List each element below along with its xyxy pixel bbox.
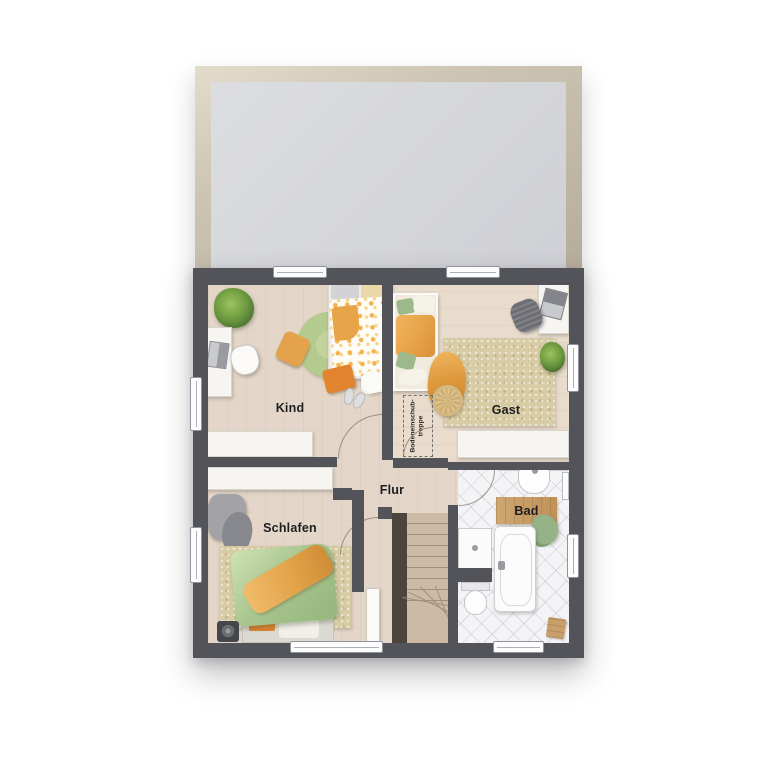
window-gast-north xyxy=(446,266,500,278)
wall-schlafen-stub xyxy=(333,488,352,500)
schlafen-speaker xyxy=(217,621,239,642)
gast-bed-pillow-white2 xyxy=(398,367,428,387)
window-schlafen-south xyxy=(290,641,383,653)
kind-laptop xyxy=(206,341,229,370)
speaker-cone xyxy=(222,625,234,637)
staircase xyxy=(392,513,448,643)
wall-gast-south xyxy=(393,458,448,468)
kind-plant xyxy=(214,288,254,328)
window-bad-south xyxy=(493,641,544,653)
gast-bed-pillow-green xyxy=(396,298,415,316)
room-label-bad: Bad xyxy=(514,504,538,518)
bad-towel-rail xyxy=(562,472,569,500)
bad-counter-dark xyxy=(455,568,492,582)
vanity-faucet-icon xyxy=(472,545,478,551)
flur-door-leaf xyxy=(366,588,380,642)
bad-toilet-bowl xyxy=(464,590,487,615)
bathtub-basin xyxy=(500,534,532,606)
floor-plan-scene: Bodeneinschub- treppe Bad xyxy=(0,0,775,775)
window-gast-east xyxy=(567,344,579,392)
window-schlafen-west xyxy=(190,527,202,583)
room-label-schlafen: Schlafen xyxy=(240,521,340,535)
gast-plant xyxy=(540,342,565,372)
bad-vanity xyxy=(458,528,492,569)
wall-top xyxy=(193,268,584,285)
bad-stool xyxy=(546,617,567,639)
stair-treads xyxy=(407,513,448,601)
stair-stringer xyxy=(392,513,407,643)
bathtub-faucet-icon xyxy=(498,561,505,570)
wall-schlafen-east xyxy=(352,490,364,592)
wall-bad-west xyxy=(448,505,458,643)
gast-sideboard xyxy=(457,430,569,458)
wall-right xyxy=(569,268,584,658)
room-label-flur: Flur xyxy=(362,483,422,497)
wall-left xyxy=(193,268,208,658)
room-label-kind: Kind xyxy=(260,401,320,415)
wall-kind-south xyxy=(208,457,337,467)
terrace-roof-surface xyxy=(211,82,566,270)
wall-bad-north xyxy=(448,462,569,470)
wall-kind-gast xyxy=(382,285,393,460)
wall-stair-stub xyxy=(378,507,392,519)
window-bad-east xyxy=(567,534,579,578)
window-kind-north xyxy=(273,266,327,278)
schlafen-wardrobe xyxy=(205,467,333,490)
gast-bed-pillow-white xyxy=(413,295,435,314)
gast-pouf xyxy=(432,385,463,416)
window-kind-west xyxy=(190,377,202,431)
kind-wardrobe xyxy=(203,431,313,457)
gast-bed-blanket-orange xyxy=(396,315,435,357)
room-label-gast: Gast xyxy=(476,403,536,417)
bad-bathtub xyxy=(494,526,536,612)
